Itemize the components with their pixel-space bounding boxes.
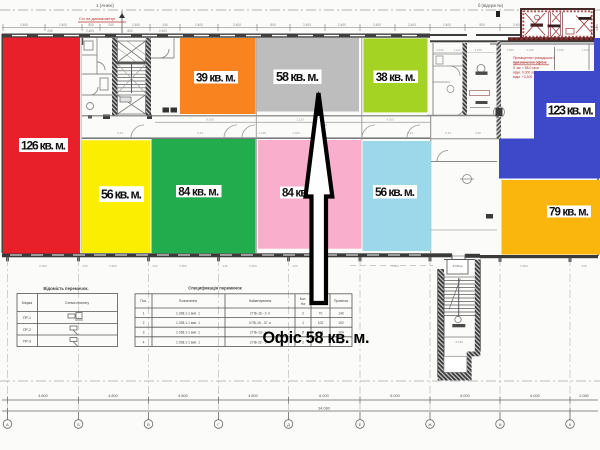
svg-text:2.080: 2.080 [579,394,589,398]
svg-text:1.038.1-1 вип. 1: 1.038.1-1 вип. 1 [176,312,200,316]
svg-text:123 кв. м.: 123 кв. м. [548,103,594,117]
svg-text:Найменування: Найменування [249,299,272,303]
svg-text:1.038.1-1 вип. 1: 1.038.1-1 вип. 1 [176,321,200,325]
svg-text:IП.Вхiд: IП.Вхiд [453,264,463,268]
svg-text:9.105: 9.105 [206,118,214,122]
svg-text:240: 240 [292,264,297,268]
svg-text:3: 3 [143,331,145,335]
svg-text:240: 240 [162,23,168,27]
svg-text:2: 2 [302,312,304,316]
svg-text:2: 2 [143,321,145,325]
svg-text:240: 240 [47,29,53,33]
svg-text:1.020: 1.020 [292,131,300,135]
svg-text:Схема прилягу: Схема прилягу [65,301,90,305]
svg-text:Б: Б [77,422,80,427]
svg-text:6.000: 6.000 [460,394,470,398]
svg-text:2.400: 2.400 [373,23,381,27]
svg-text:А: А [6,422,9,427]
svg-text:И: И [499,422,502,427]
svg-text:1.485: 1.485 [507,48,514,52]
svg-text:6.000: 6.000 [319,394,329,398]
svg-text:4.800: 4.800 [38,394,48,398]
svg-text:1 (Анехi): 1 (Анехi) [96,3,114,8]
svg-text:2.400: 2.400 [338,23,346,27]
svg-text:S заг = 58,0 кв.м: S заг = 58,0 кв.м [513,66,540,70]
svg-text:Кол.: Кол. [300,297,307,301]
svg-text:6.000: 6.000 [391,264,399,268]
svg-text:2.440: 2.440 [527,48,534,52]
svg-text:2.400: 2.400 [59,23,67,27]
svg-text:1.135: 1.135 [258,131,266,135]
svg-text:4.105: 4.105 [475,48,482,52]
svg-text:800: 800 [127,29,133,33]
svg-text:4.105: 4.105 [386,118,394,122]
svg-text:Е: Е [359,422,362,427]
svg-text:240: 240 [581,264,586,268]
svg-text:Сiч на динамометрi: Сiч на динамометрi [79,16,115,21]
svg-text:Ж: Ж [428,422,432,427]
svg-text:1.110: 1.110 [454,48,461,52]
svg-text:70: 70 [319,312,323,316]
svg-text:800: 800 [270,23,276,27]
svg-text:5.960: 5.960 [179,264,187,268]
svg-text:240: 240 [152,264,157,268]
svg-text:1: 1 [302,321,304,325]
svg-text:102: 102 [338,321,344,325]
svg-text:2.400: 2.400 [303,23,311,27]
svg-text:5.960: 5.960 [520,264,528,268]
svg-text:Примiтка: Примiтка [334,299,348,303]
svg-text:Марка: Марка [22,301,32,305]
svg-text:800: 800 [479,23,485,27]
svg-text:5.960: 5.960 [249,264,257,268]
svg-text:79 кв. м.: 79 кв. м. [549,207,589,219]
svg-text:ПР-3: ПР-3 [23,340,31,344]
svg-text:240: 240 [222,264,227,268]
svg-text:34.080: 34.080 [318,407,330,411]
svg-text:2.400: 2.400 [20,23,28,27]
svg-text:4.740: 4.740 [455,340,463,344]
svg-text:6.000: 6.000 [530,394,540,398]
svg-text:2.44: 2.44 [445,131,451,135]
svg-text:800: 800 [88,23,94,27]
svg-text:4.105: 4.105 [557,48,564,52]
svg-text:6.000: 6.000 [390,394,400,398]
svg-text:2.440: 2.440 [437,48,444,52]
svg-text:2.400: 2.400 [408,23,416,27]
svg-text:1.038.1-1 вип. 1: 1.038.1-1 вип. 1 [176,331,200,335]
svg-text:2 ПБ-16 - 2 -п: 2 ПБ-16 - 2 -п [250,312,271,316]
svg-text:2.400: 2.400 [159,29,167,33]
svg-text:2.400: 2.400 [443,23,451,27]
svg-text:240: 240 [82,264,87,268]
svg-text:39 кв. м.: 39 кв. м. [196,72,236,84]
svg-text:В: В [147,422,150,427]
svg-text:ПР-2: ПР-2 [23,328,31,332]
svg-text:140: 140 [338,312,344,316]
svg-text:4.800: 4.800 [108,394,118,398]
svg-text:Спецификацiя перемичок: Спецификацiя перемичок [188,286,242,291]
svg-text:4.800: 4.800 [178,394,188,398]
svg-text:4.800: 4.800 [248,394,258,398]
svg-text:102: 102 [318,321,324,325]
svg-text:Офiс 58 кв. м.: Офiс 58 кв. м. [263,329,370,347]
svg-text:1.110: 1.110 [582,48,589,52]
svg-text:126 кв. м.: 126 кв. м. [21,138,66,152]
svg-text:На: На [301,302,305,306]
svg-text:6.000: 6.000 [39,264,47,268]
svg-text:2.400: 2.400 [233,23,241,27]
svg-text:1: 1 [143,312,145,316]
svg-text:3.44: 3.44 [197,131,203,135]
svg-text:Д: Д [287,422,290,427]
svg-text:б (вiдерж №): б (вiдерж №) [478,3,504,8]
svg-text:ПР-1: ПР-1 [23,316,31,320]
svg-text:Поз.: Поз. [140,299,147,303]
svg-text:Позначення: Позначення [179,299,197,303]
svg-text:вiдм. +3,300: вiдм. +3,300 [513,75,532,79]
svg-text:2.400: 2.400 [132,23,140,27]
svg-text:58 кв. м.: 58 кв. м. [276,70,319,84]
svg-text:56 кв. м.: 56 кв. м. [375,185,415,199]
svg-text:3 ПБ-16 - 37 -п: 3 ПБ-16 - 37 -п [249,321,272,325]
svg-text:2.400: 2.400 [513,23,521,27]
svg-text:240: 240 [108,23,114,27]
svg-text:84 кв. м.: 84 кв. м. [178,186,219,198]
svg-text:38 кв. м.: 38 кв. м. [376,72,416,84]
svg-text:56 кв. м.: 56 кв. м. [101,187,142,201]
svg-text:1.038.1-1 вип. 1: 1.038.1-1 вип. 1 [176,340,200,344]
svg-text:Вiдомiсть перемичок.: Вiдомiсть перемичок. [43,286,88,291]
svg-text:2.400: 2.400 [86,29,94,33]
svg-text:призначення офiснi: призначення офiснi [513,61,547,65]
svg-text:5.960: 5.960 [109,264,117,268]
svg-text:1.110: 1.110 [296,118,304,122]
svg-text:3.44: 3.44 [117,131,123,135]
svg-text:Примiщення громадського: Примiщення громадського [513,56,555,60]
svg-text:2.400: 2.400 [195,23,203,27]
svg-text:4: 4 [143,340,145,344]
svg-text:3.90: 3.90 [475,131,481,135]
svg-text:3.44: 3.44 [407,131,413,135]
